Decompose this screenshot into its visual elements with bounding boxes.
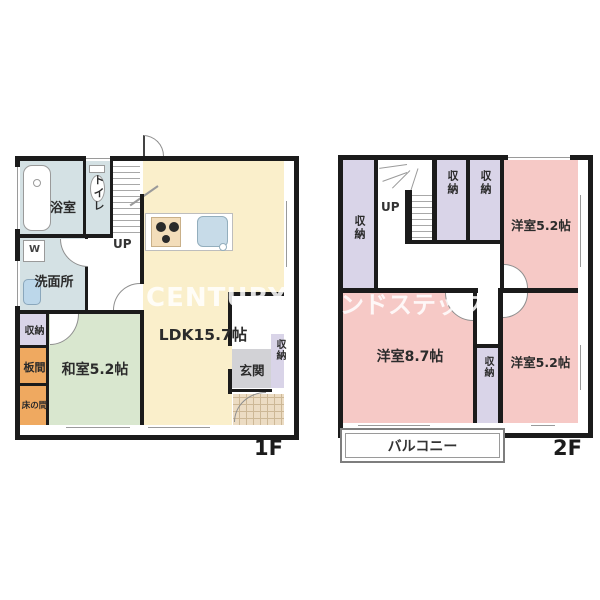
window: [15, 167, 20, 229]
wall: [20, 234, 113, 238]
window: [531, 423, 555, 428]
genkan-closet-label: 収納: [272, 339, 287, 361]
wall: [405, 240, 500, 244]
closet-2f-left-label: 収納: [351, 215, 367, 241]
floor-2-label: 2F: [553, 436, 582, 460]
stair-fan-line: [379, 164, 407, 169]
door-arc: [113, 283, 140, 310]
window: [578, 195, 583, 267]
bath-label: 浴室: [50, 197, 76, 216]
window: [578, 345, 583, 390]
wall: [140, 311, 144, 425]
window: [66, 425, 130, 430]
room-top-right-label: 洋室5.2帖: [504, 215, 578, 234]
ldk-label: LDK15.7帖: [147, 323, 259, 345]
closet-2f-mid-label: 収納: [480, 356, 495, 378]
watermark-left: CENTURY: [146, 283, 288, 313]
wall: [477, 344, 498, 348]
wall: [83, 161, 86, 237]
window: [508, 155, 570, 160]
toilet-tank-icon: [89, 165, 105, 173]
toilet-label: トイレ: [90, 174, 106, 213]
window: [15, 261, 20, 306]
stairs-2f: [412, 190, 432, 240]
washitsu-label: 和室5.2帖: [50, 359, 140, 379]
door-arc: [143, 135, 164, 156]
watermark-right: ンドステップ: [340, 285, 484, 320]
wall: [432, 160, 437, 244]
wall: [110, 161, 113, 237]
wall: [405, 190, 412, 242]
wall: [374, 160, 378, 292]
window: [86, 156, 110, 161]
up-label-2f: UP: [381, 200, 400, 214]
wall: [20, 310, 144, 314]
closet-2f-b-label: 収納: [477, 170, 493, 196]
genkan-label: 玄関: [232, 360, 272, 379]
balcony-inner: バルコニー: [345, 433, 500, 458]
wall: [20, 345, 49, 348]
wall: [20, 383, 49, 386]
burner-icon: [169, 222, 179, 232]
burner-icon: [162, 235, 170, 243]
floor-1-label: 1F: [254, 436, 283, 460]
faucet-icon: [219, 243, 227, 251]
wall: [140, 194, 144, 237]
bathtub-icon: [23, 165, 51, 231]
balcony: バルコニー: [340, 428, 505, 463]
room-main-label: 洋室8.7帖: [351, 346, 469, 366]
washer-mark: W: [29, 244, 40, 255]
stairs-1f: [113, 161, 140, 235]
itama-label: 板間: [20, 359, 49, 375]
window: [284, 201, 289, 267]
wall: [140, 237, 144, 284]
stair-fan-line: [410, 168, 418, 190]
drain-icon: [33, 179, 41, 187]
closet-1f-label: 収納: [20, 322, 49, 337]
closet-2f-a-label: 収納: [444, 170, 460, 196]
burner-icon: [156, 222, 166, 232]
up-label-1f: UP: [113, 237, 132, 251]
floor-plan-canvas: 浴室 トイレ UP 洗面所 W 収納 板間 床の間 和室5.2帖 LDK15.7…: [0, 0, 600, 600]
washroom-label: 洗面所: [24, 271, 84, 290]
window: [148, 425, 210, 430]
tokonoma-label: 床の間: [20, 399, 49, 411]
balcony-label: バルコニー: [388, 436, 458, 456]
wall: [466, 160, 470, 244]
room-bottom-right-label: 洋室5.2帖: [503, 352, 578, 371]
